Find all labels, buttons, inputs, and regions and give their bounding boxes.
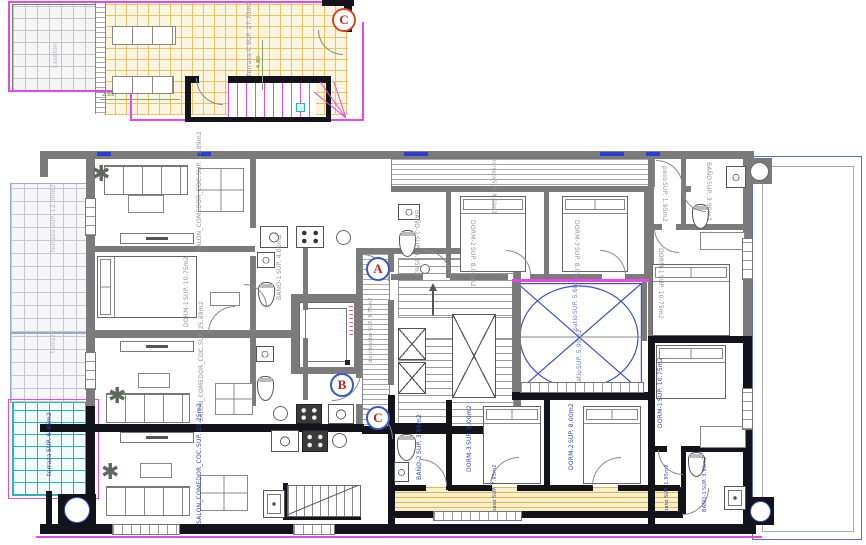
room-label-terraza-cyan: terrazaSUP. 6.45m2: [46, 430, 54, 476]
dining-table: [200, 475, 248, 511]
washbasin: [394, 462, 409, 482]
door-arc: [420, 459, 447, 486]
wall: [391, 186, 653, 192]
plant-icon: ✱: [92, 164, 110, 186]
door-arc: [208, 306, 235, 333]
shaft-cab: [305, 308, 347, 362]
coffee-table: [128, 195, 164, 213]
wall: [450, 274, 508, 280]
wall: [86, 330, 291, 338]
patio-window-band: [520, 382, 644, 393]
fridge: [263, 490, 285, 518]
wall: [291, 294, 361, 302]
wall-dark: [446, 400, 452, 490]
roof-outline: [130, 90, 132, 121]
sofa: [104, 165, 188, 195]
section-marker-c-top: C: [332, 8, 356, 32]
wall: [642, 281, 647, 341]
room-label-dorm2-c: DORM-2SUP. 8.00m2: [568, 414, 576, 470]
coffee-table: [138, 373, 170, 388]
desk: [700, 232, 745, 250]
kitchen-sink: [328, 404, 354, 424]
roof-outline: [362, 22, 364, 121]
column-circle: [750, 501, 771, 522]
wall: [291, 294, 299, 374]
window-sill: [97, 152, 111, 156]
dimension-line: [100, 99, 180, 100]
room-label-terraza-roof: terraza-CSUP. 27.75m2: [246, 24, 254, 76]
toilet: [397, 434, 416, 461]
plant-icon: ✱: [108, 386, 126, 408]
tv-bench: [120, 432, 194, 443]
floor-plan-canvas: C terraza-CSUP. 27.75m2 casetón 2.69 4.8…: [0, 0, 866, 545]
room-label-terraza-l1: terrazaSUP. 12.00m2: [50, 210, 58, 252]
room-label-dorm1-a: DORM-1SUP. 10.75m2: [183, 272, 191, 327]
room-label-salon-c: SALON_COMEDOR_COC.SUP. 25.25m2: [196, 446, 204, 524]
dimension-line: [262, 40, 263, 90]
wall-dark: [520, 511, 683, 518]
coffee-table: [140, 463, 172, 478]
roof-stair-wall: [185, 76, 191, 122]
section-marker-b: B: [330, 373, 354, 397]
wall-dark: [448, 485, 492, 491]
wall: [512, 281, 517, 395]
wall-dark: [648, 336, 655, 530]
window: [433, 511, 522, 521]
roof-plan-section: C terraza-CSUP. 27.75m2 casetón 2.69 4.8…: [0, 0, 380, 132]
patio-top-edge: [512, 279, 649, 282]
vent-shaft: [398, 362, 426, 394]
wall: [676, 224, 748, 230]
side-table: [210, 292, 240, 306]
toilet: [257, 376, 274, 401]
vent-shaft: [398, 328, 426, 360]
wall-dark: [544, 400, 550, 490]
bed: [97, 256, 197, 318]
window: [742, 238, 753, 280]
dining-table: [215, 383, 253, 415]
washbasin: [257, 252, 275, 268]
dining-table: [198, 168, 244, 212]
room-label-dorm1-b: DORM-1SUP. 10.75m2: [656, 248, 664, 303]
room-label-paso-y: pasoSUP. 7.95m2: [492, 486, 499, 512]
room-label-distribuidor: distribuidorSUP. 9.75m2: [368, 315, 375, 363]
interior-stairs-diagonal: [287, 485, 359, 515]
roof-winder-stair: [314, 82, 346, 118]
door-arc: [658, 450, 683, 475]
room-label-paso-c: pasoSUP. 1.95m2: [664, 476, 671, 512]
desk: [700, 426, 746, 448]
wall: [250, 158, 256, 228]
room-label-bano1-a: BAÑO-1SUP. 4.05m2: [276, 250, 284, 300]
room-label-dorm3-c: DORM-3SUP. 8.00m2: [466, 416, 474, 472]
wall-dark: [648, 336, 752, 343]
sunbed: [112, 26, 176, 45]
wall: [544, 192, 549, 278]
room-label-salon-a: SALON_COMEDOR_COC.SUP. 25.89m2: [196, 170, 204, 252]
room-label-bano-b: BAÑOSUP. 3.90m2: [704, 162, 712, 206]
shower-tray: [724, 486, 746, 510]
sofa: [106, 486, 190, 516]
wall: [40, 151, 48, 177]
base-line: [36, 536, 762, 538]
teal-mark: [296, 103, 305, 112]
wall: [388, 300, 394, 385]
roof-outline: [8, 1, 340, 3]
marker-letter: C: [339, 12, 348, 28]
marker-letter: B: [338, 377, 347, 393]
tv-bench: [120, 233, 194, 244]
plant-icon: ✱: [101, 462, 119, 484]
kitchen-sink: [271, 430, 299, 452]
room-label-bano2-b: BAÑO-2SUP. 4.05m2: [412, 210, 420, 265]
room-label-patio1: patioSUP. 5.68m2: [572, 293, 580, 331]
room-label-patio2: patioSUP. 5.99m2: [576, 348, 584, 386]
roof-stair-wall: [185, 117, 331, 122]
wall: [95, 246, 255, 252]
room-label-caseton: casetón: [52, 32, 60, 68]
roof-outline: [8, 1, 10, 92]
wall-dark: [512, 392, 649, 400]
balcony-strip-hatch: [391, 159, 655, 187]
room-label-terraza-b: terrazaSUP. 9.60m2: [490, 160, 497, 186]
kitchen-sink: [260, 226, 288, 248]
washbasin: [256, 346, 274, 362]
kitchen-fixture: [332, 433, 347, 448]
window: [742, 388, 753, 430]
room-label-paso-b: pasoSUP. 1.95m2: [660, 166, 668, 208]
stove: [296, 404, 322, 424]
stair-direction-arrow: [429, 283, 437, 291]
shaft-pink-hatch: [349, 306, 353, 336]
window-sill: [404, 152, 428, 156]
room-label-dorm1-c: DORM-1SUP. 10.75m2: [657, 378, 665, 428]
sunbed: [112, 76, 174, 94]
section-marker-c: C: [366, 406, 390, 430]
room-label-bano2-c: BAÑO-2SUP. 3.95m2: [416, 428, 424, 480]
wall-dark: [388, 511, 433, 518]
room-label-bano1-c: BAÑO-1SUP. 3.90m2: [702, 470, 709, 512]
column-circle: [750, 162, 769, 181]
window: [293, 524, 335, 535]
window-sill: [646, 152, 660, 156]
shaft-dot: [345, 360, 350, 365]
door-arc: [506, 250, 531, 275]
kitchen-fixture: [336, 230, 351, 245]
dimension-text: 2.69: [102, 92, 114, 98]
room-label-dorm3-b: DORM-3SUP. 8.05m2: [572, 220, 580, 282]
bed: [656, 345, 726, 399]
stove: [296, 226, 324, 248]
window: [112, 524, 180, 535]
marker-letter: A: [373, 261, 382, 277]
tv-bench: [120, 341, 194, 352]
wall-dark: [46, 491, 52, 531]
section-marker-a: A: [366, 257, 390, 281]
stair-arrow-stem: [432, 291, 434, 315]
kitchen-fixture: [273, 406, 288, 421]
stove: [302, 430, 328, 452]
marker-letter: C: [373, 410, 382, 426]
room-label-terraza-l2: terraza: [50, 318, 58, 353]
wall-dark: [517, 485, 593, 491]
handrail-post: [420, 264, 430, 274]
terrace-right-inner: [762, 166, 854, 532]
window-sill: [600, 152, 624, 156]
room-label-dorm2-b: DORM-2SUP. 8.05m2: [468, 220, 476, 282]
column-circle: [64, 497, 90, 523]
washbasin: [726, 166, 746, 188]
elevator-shaft: [452, 314, 496, 398]
window: [85, 198, 96, 236]
window: [85, 352, 96, 390]
